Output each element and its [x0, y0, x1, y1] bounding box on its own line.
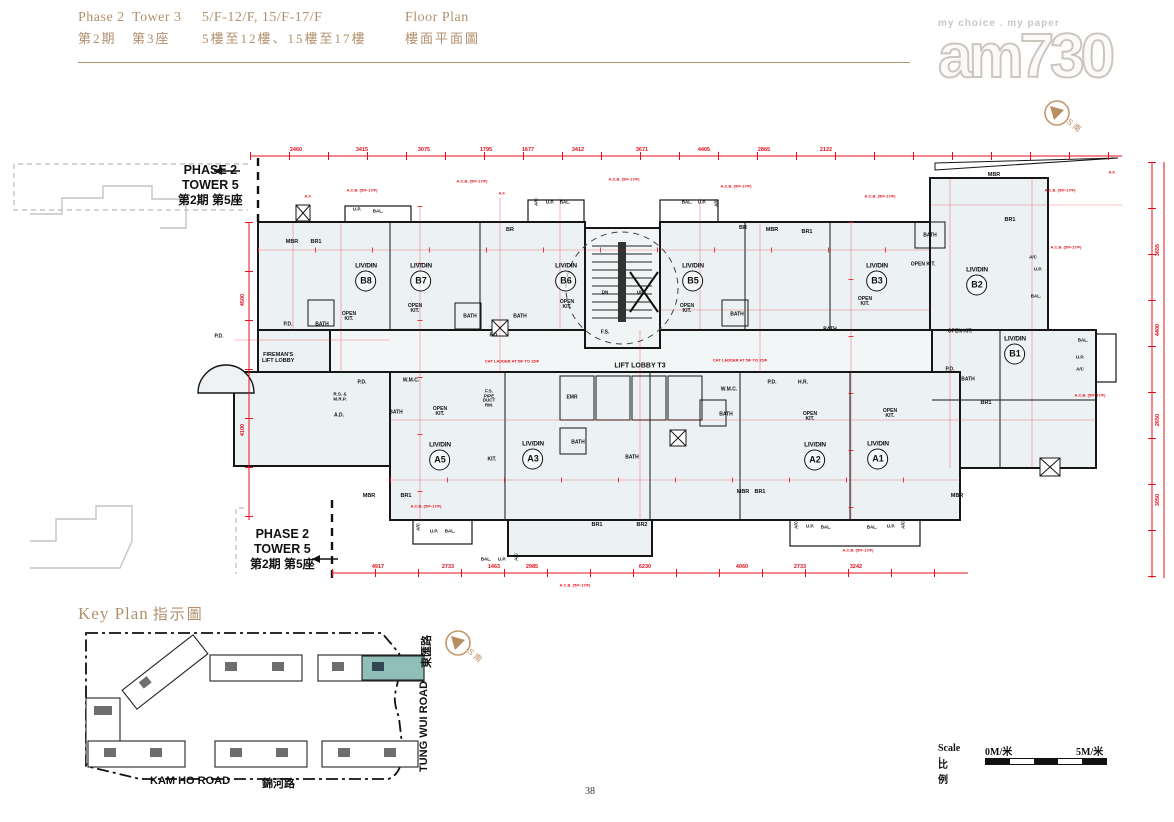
note-line: 第2期 第5座 — [178, 193, 243, 208]
kam-ho-road-label-en: KAM HO ROAD — [150, 775, 230, 787]
phase2-tower5-note-top: PHASE 2 TOWER 5 第2期 第5座 — [178, 163, 243, 208]
scale-label-zh: 比例 — [938, 756, 948, 786]
scale-bar-graphic — [985, 758, 1107, 765]
floor-plan-drawing — [0, 0, 1174, 822]
scale-from: 0M/米 — [985, 743, 1012, 758]
brochure-page: Phase 2 Tower 3 第2期 第3座 5/F-12/F, 15/F-1… — [0, 0, 1174, 822]
key-plan-title-zh: 指示圖 — [153, 607, 204, 623]
scale-to: 5M/米 — [1076, 743, 1103, 758]
note-line: TOWER 5 — [250, 542, 315, 557]
fireman-lobby-label: FIREMAN'S LIFT LOBBY — [262, 352, 294, 364]
key-plan-title: Key Plan 指示圖 — [78, 603, 204, 624]
key-plan-title-en: Key Plan — [78, 604, 149, 623]
note-line: 第2期 第5座 — [250, 557, 315, 572]
page-number: 38 — [560, 786, 620, 797]
tung-wui-road-label-zh: 東匯路 — [418, 635, 434, 668]
north-compass-keyplan: S 南 — [443, 628, 477, 667]
lift-lobby-label: LIFT LOBBY T3 — [614, 363, 665, 370]
note-line: PHASE 2 — [178, 163, 243, 178]
note-line: PHASE 2 — [250, 527, 315, 542]
kam-ho-road-label-zh: 錦河路 — [262, 775, 295, 791]
phase2-tower5-note-bottom: PHASE 2 TOWER 5 第2期 第5座 — [250, 527, 315, 572]
tung-wui-road-label-en: TUNG WUI ROAD — [418, 681, 430, 772]
note-line: TOWER 5 — [178, 178, 243, 193]
building-outline — [198, 158, 1118, 556]
